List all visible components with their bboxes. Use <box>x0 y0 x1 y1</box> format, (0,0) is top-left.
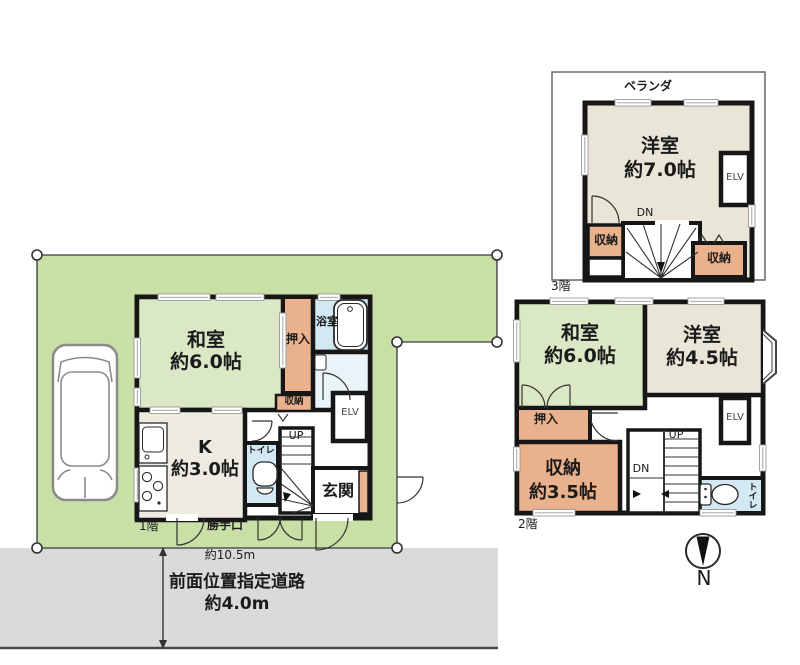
washbasin-icon <box>315 355 326 370</box>
label-washitsu-2f: 和室 <box>520 324 640 344</box>
label-floor2-name: 2階 <box>518 518 552 531</box>
label-elevator-3f: ELV <box>717 173 753 184</box>
label-washitsu-1f: 和室 <box>146 331 266 351</box>
toilet-icon-2f <box>700 484 738 505</box>
label-elevator-2f: ELV <box>717 413 753 424</box>
label-youshitsu-2f: 洋室 <box>644 326 760 346</box>
label-storage-size-2f: 約3.5帖 <box>504 484 622 503</box>
label-oshiire-2f: 押入 <box>520 413 572 426</box>
label-veranda-3f: ベランダ <box>606 80 690 93</box>
label-stairs-down-2f: DN <box>626 463 656 475</box>
label-frontage: 約10.5m <box>190 549 270 562</box>
floor-plan: 和室 約6.0帖 押入 浴室 収納 ELV K 約3.0帖 トイレ UP 玄関 … <box>0 0 800 665</box>
label-elevator-1f: ELV <box>332 408 368 419</box>
car-icon <box>53 345 117 500</box>
label-storage-2f: 収納 <box>508 460 618 479</box>
label-washitsu-size-1f: 約6.0帖 <box>146 353 266 373</box>
label-back-door-1f: 勝手口 <box>198 519 252 532</box>
label-youshitsu-3f: 洋室 <box>600 137 720 157</box>
label-oshiire-1f: 押入 <box>276 333 320 346</box>
label-youshitsu-size-3f: 約7.0帖 <box>600 161 720 181</box>
label-washitsu-size-2f: 約6.0帖 <box>520 347 640 367</box>
label-floor3-name: 3階 <box>551 280 585 293</box>
kitchen-sink-icon <box>139 423 167 463</box>
label-stairs-up-1f: UP <box>281 430 311 442</box>
label-road-name: 前面位置指定道路 <box>135 574 339 592</box>
label-toilet-2f: トイレ <box>746 479 755 511</box>
compass-icon <box>686 534 720 568</box>
label-youshitsu-size-2f: 約4.5帖 <box>644 349 760 369</box>
label-stairs-up-2f: UP <box>661 429 691 441</box>
label-toilet-1f: トイレ <box>243 447 279 456</box>
bay-window-2f <box>763 330 776 384</box>
label-kitchen-1f: K <box>175 439 235 458</box>
label-road-width: 約4.0m <box>185 596 289 614</box>
label-storage-left-3f: 収納 <box>584 234 628 247</box>
label-storage-1f: 収納 <box>276 397 312 407</box>
label-storage-right-3f: 収納 <box>697 252 741 265</box>
label-floor1-name: 1階 <box>139 520 173 533</box>
label-kitchen-size-1f: 約3.0帖 <box>147 461 263 480</box>
label-compass-n: N <box>689 568 719 589</box>
label-genkan-1f: 玄関 <box>310 483 366 500</box>
label-bathroom-1f: 浴室 <box>306 316 348 328</box>
label-stairs-down-3f: DN <box>630 207 660 219</box>
